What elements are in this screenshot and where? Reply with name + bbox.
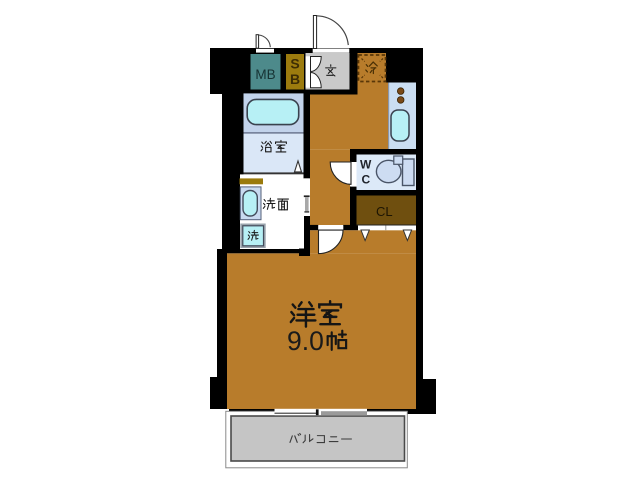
svg-text:C: C	[362, 173, 371, 187]
svg-text:9.0: 9.0	[287, 326, 324, 356]
svg-text:MB: MB	[255, 67, 275, 82]
svg-text:B: B	[290, 71, 300, 87]
svg-text:S: S	[290, 56, 299, 72]
svg-text:W: W	[360, 158, 372, 172]
svg-text:CL: CL	[376, 204, 393, 219]
